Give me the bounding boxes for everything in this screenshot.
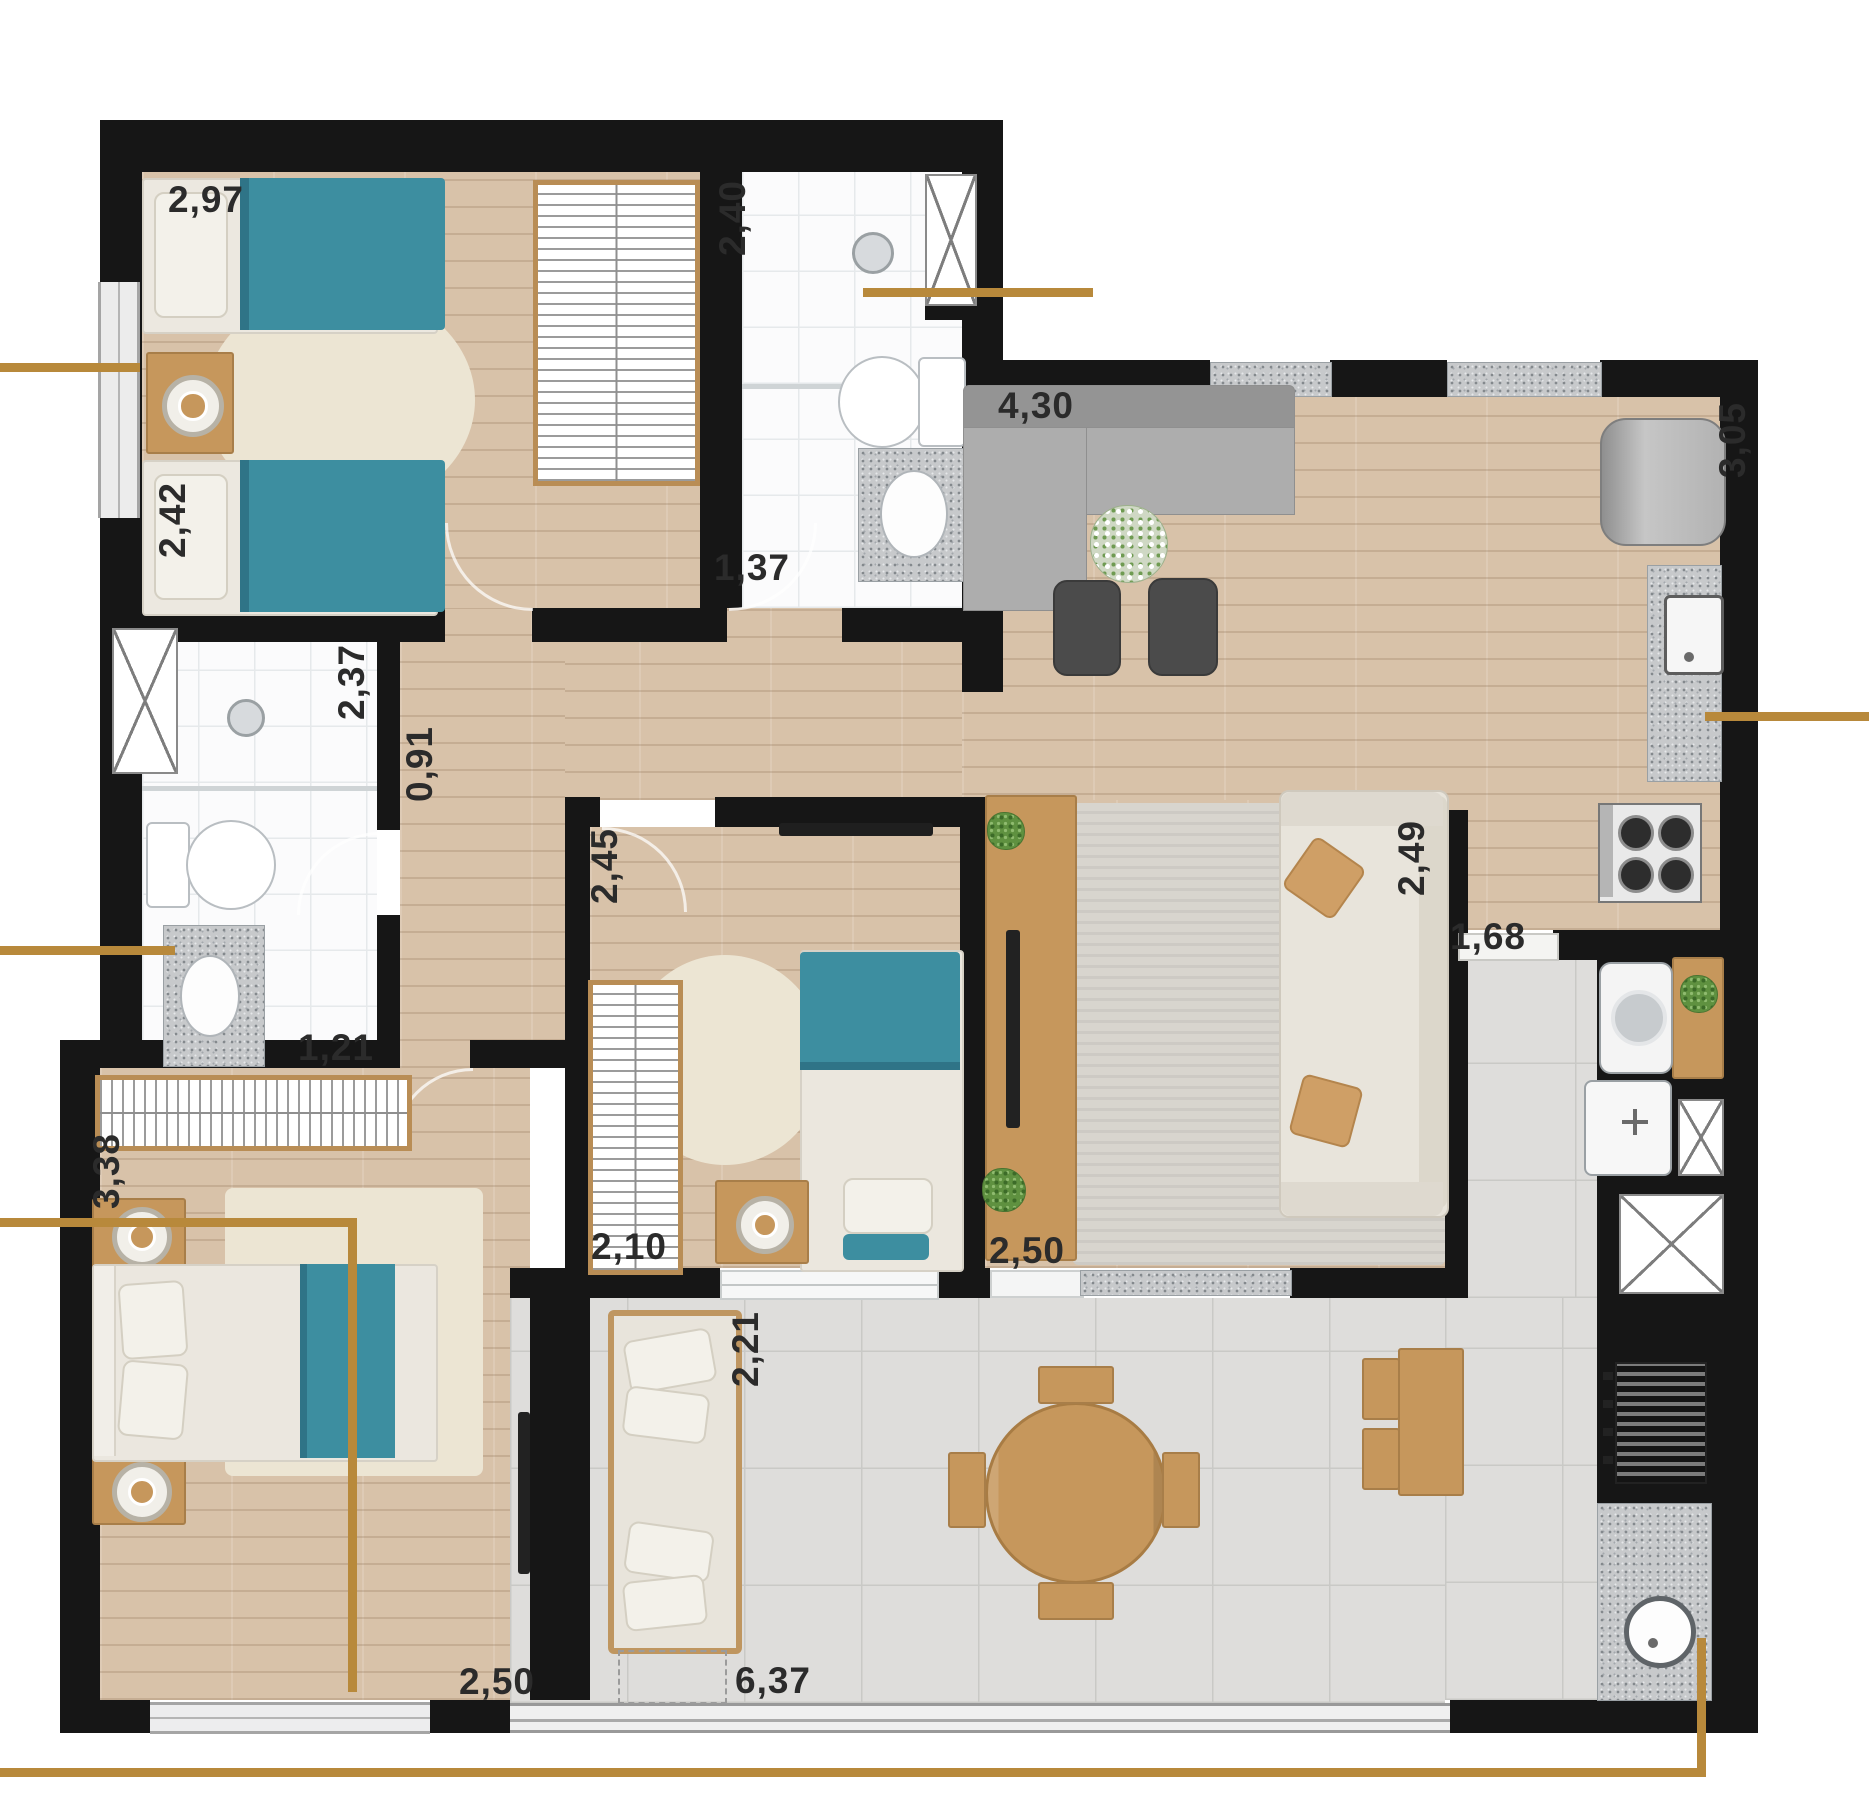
dim-master-depth: 3,38 (86, 1133, 128, 1209)
suite-balcony-glass (990, 1270, 1084, 1298)
floor-marker-dashed (618, 1650, 727, 1704)
sofa-pillow (623, 1520, 715, 1583)
corridor-floor (400, 608, 565, 1068)
double-bed-icon (92, 1264, 438, 1462)
service-floor-bottom (1445, 1298, 1597, 1700)
nightstand-lamp-icon (112, 1462, 172, 1522)
callout-line-icon (348, 1218, 357, 1692)
dim-bath2-width: 1,21 (298, 1027, 374, 1069)
nightstand-lamp-icon (736, 1196, 794, 1254)
dim-bath1-width: 1,37 (714, 547, 790, 589)
plant-icon (987, 812, 1025, 850)
wall-master-top-b (470, 1040, 565, 1068)
bed-pillow (117, 1280, 188, 1360)
dim-suite-depth: 2,49 (1391, 820, 1433, 896)
toilet-tank (146, 822, 190, 908)
wall-bottom-a (60, 1700, 150, 1733)
grill-knob (1603, 1456, 1613, 1464)
sofa-pillow (622, 1327, 718, 1395)
toilet-tank (918, 357, 966, 447)
plant-icon (982, 1168, 1026, 1212)
master-window (150, 1702, 430, 1734)
tv-icon (779, 823, 933, 836)
wall-band-c (842, 608, 1003, 642)
shower-head-icon (227, 699, 265, 737)
dim-master-width: 2,50 (459, 1661, 535, 1703)
burner (1658, 857, 1694, 893)
bed-headboard (94, 1266, 116, 1456)
dim-bath1-depth: 2,40 (712, 180, 754, 256)
tv-icon (518, 1412, 530, 1574)
dining-chair-icon (1038, 1582, 1114, 1620)
wall-band-b (532, 608, 727, 642)
midbed-balcony-window (720, 1270, 939, 1300)
stool-icon (1148, 578, 1218, 676)
dim-balcony-depth: 2,21 (725, 1311, 767, 1387)
plant-icon (1090, 505, 1168, 583)
balcony-desk (1398, 1348, 1464, 1496)
shower-head-icon (852, 232, 894, 274)
dim-midbed-depth: 2,45 (584, 828, 626, 904)
sofa-pillow (1288, 1073, 1364, 1149)
grill-knob (1603, 1400, 1613, 1408)
round-dining-table-icon (985, 1402, 1167, 1584)
laundry-tank-icon (1584, 1080, 1672, 1176)
callout-line-icon (0, 946, 175, 955)
dim-bath2-depth: 2,37 (331, 644, 373, 720)
wall-balcony-band-b (935, 1268, 990, 1298)
washer-drum (1611, 990, 1667, 1046)
sink-icon (880, 470, 948, 558)
dim-hall-width: 0,91 (399, 726, 441, 802)
desk-chair-icon (1362, 1428, 1400, 1490)
burner (1618, 815, 1654, 851)
wall-right (1720, 360, 1758, 1733)
bed-blanket (800, 952, 960, 1070)
toilet-icon (186, 820, 276, 910)
wall-bottom-b (430, 1700, 510, 1733)
grill-knob (1603, 1372, 1613, 1380)
living-window-sill-2 (1447, 362, 1602, 397)
bed-blanket (240, 178, 445, 330)
fridge-icon (1600, 418, 1726, 546)
bed-pillow (843, 1178, 933, 1234)
washer-icon (1599, 962, 1673, 1074)
balcony-sofa-icon (608, 1310, 742, 1654)
grill-knob (1603, 1428, 1613, 1436)
dim-midbed-width: 2,10 (591, 1226, 667, 1268)
sofa-pillow (621, 1385, 710, 1445)
service-shaft-icon (1619, 1194, 1724, 1294)
bed-pillow (117, 1359, 189, 1440)
suite-balcony-sill (1080, 1270, 1292, 1296)
bedroom1-window (98, 282, 140, 518)
sofa-arm (1281, 1182, 1443, 1216)
single-bed-icon (800, 950, 964, 1272)
dining-chair-icon (1038, 1366, 1114, 1404)
cooktop-panel (1600, 805, 1613, 897)
round-sink-icon (1624, 1596, 1696, 1668)
sofa-pillow (622, 1574, 709, 1632)
dim-living-width: 4,30 (998, 385, 1074, 427)
dining-chair-icon (948, 1452, 986, 1528)
sink-icon (180, 955, 240, 1037)
wall-top (100, 120, 1003, 172)
callout-line-icon (863, 288, 1093, 297)
cooktop-icon (1598, 803, 1702, 903)
kitchen-sink-tap (1684, 652, 1694, 662)
burner (1618, 857, 1654, 893)
tv-icon (1006, 930, 1020, 1128)
wall-living-top-2 (1330, 360, 1447, 397)
balcony-sliding-door (510, 1703, 1450, 1733)
round-sink-tap (1648, 1638, 1658, 1648)
dim-kitchen-depth: 3,05 (1712, 402, 1754, 478)
desk-chair-icon (1362, 1358, 1400, 1420)
dim-bedroom1-depth: 2,42 (152, 482, 194, 558)
wall-balcony-band-c (1290, 1268, 1468, 1298)
dim-balcony-width: 6,37 (735, 1660, 811, 1702)
floor-plan: 2,97 2,42 2,40 1,37 4,30 3,05 2,37 0,91 … (0, 0, 1869, 1800)
bath2-vent-shaft-icon (112, 628, 178, 774)
tap-cross (1633, 1109, 1637, 1135)
bed-pillow-teal (843, 1234, 929, 1260)
callout-line-icon (0, 363, 140, 372)
callout-line-icon (1697, 1638, 1706, 1777)
nightstand-lamp-icon (112, 1207, 172, 1267)
callout-line-icon (0, 1768, 1706, 1777)
callout-line-icon (0, 1218, 357, 1227)
bath2-shower-glass (142, 786, 377, 791)
burner (1658, 815, 1694, 851)
bath1-vent-shaft-icon (925, 174, 977, 306)
kitchen-sink-icon (1664, 595, 1724, 675)
grill-icon (1615, 1362, 1707, 1484)
wall-bottom-c (1450, 1700, 1758, 1733)
sofa-pillow (1281, 835, 1367, 921)
nightstand-lamp-icon (162, 375, 224, 437)
stool-icon (1053, 580, 1121, 676)
dining-chair-icon (1162, 1452, 1200, 1528)
bed-blanket (240, 460, 445, 612)
wardrobe-icon (533, 180, 700, 486)
callout-line-icon (1705, 712, 1869, 721)
wardrobe-icon (95, 1075, 412, 1151)
dim-bedroom1-width: 2,97 (168, 179, 244, 221)
dim-service-width: 1,68 (1450, 916, 1526, 958)
dim-suite-width: 2,50 (989, 1230, 1065, 1272)
wall-master-right (530, 1298, 590, 1700)
wall-midbed-top-a (565, 797, 600, 827)
service-shaft-icon (1678, 1099, 1724, 1176)
toilet-icon (838, 356, 926, 448)
plant-icon (1680, 975, 1718, 1013)
